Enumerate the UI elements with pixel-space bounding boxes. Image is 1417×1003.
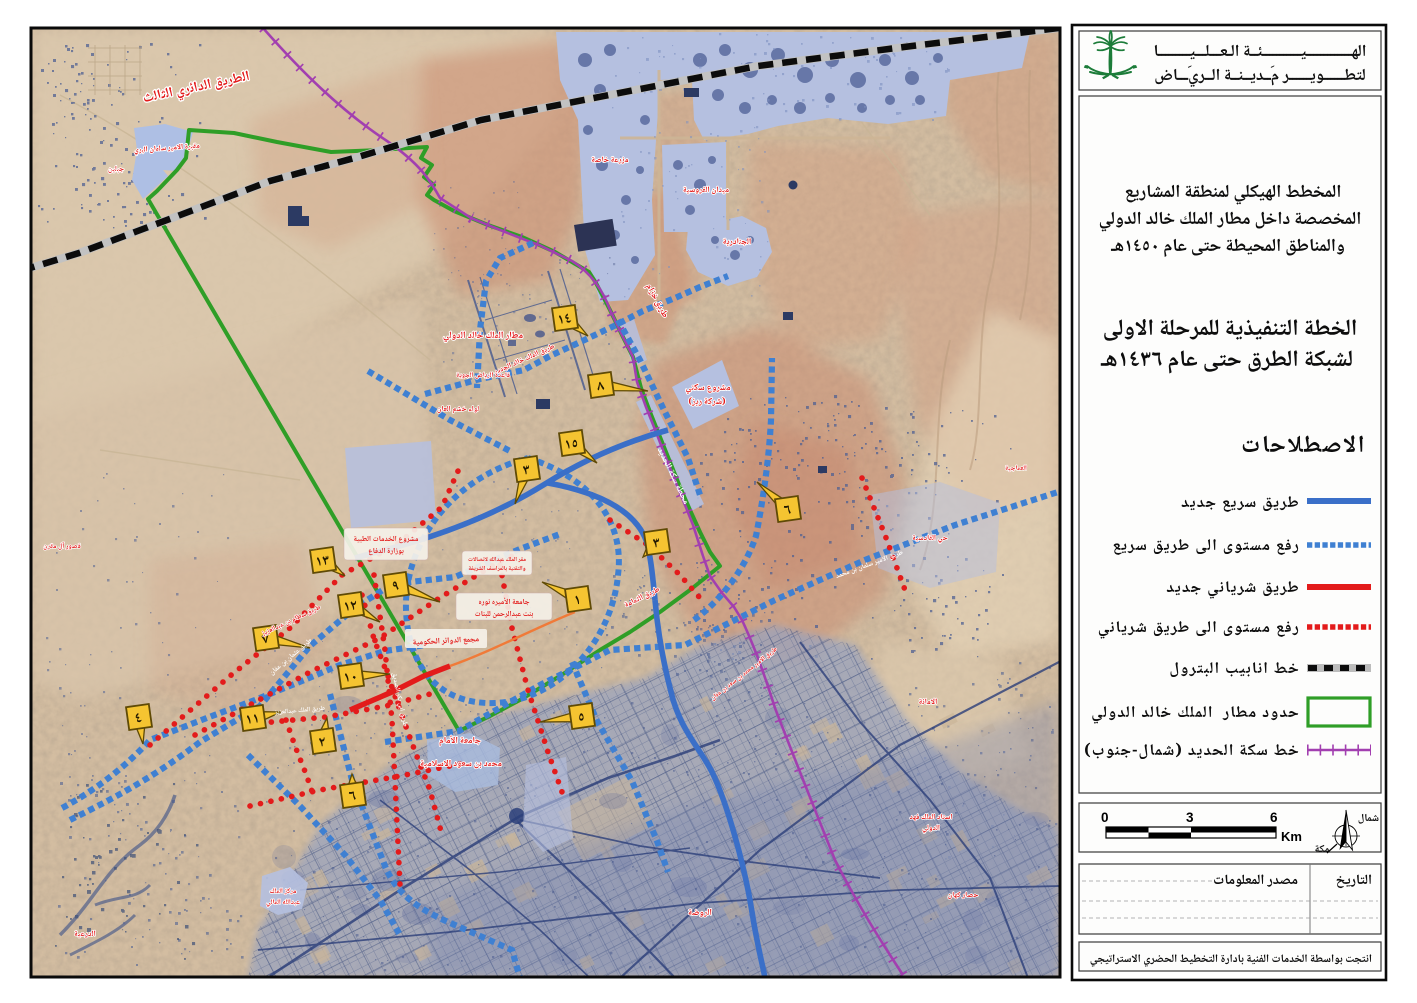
svg-text:0: 0 [1101,810,1109,825]
svg-text:6: 6 [1270,810,1278,825]
svg-text:Km: Km [1281,829,1302,844]
svg-text:3: 3 [1186,810,1194,825]
